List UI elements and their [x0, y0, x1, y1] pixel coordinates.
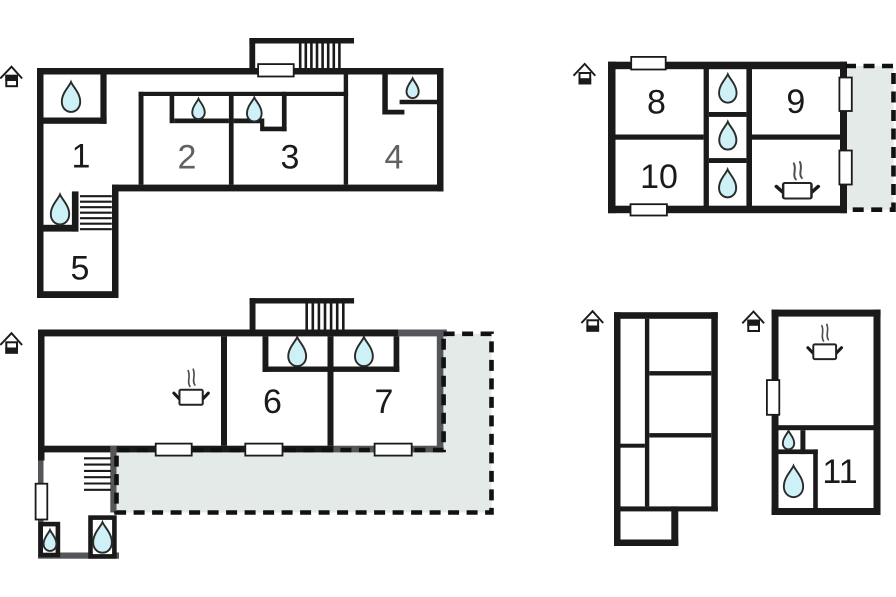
svg-text:2: 2	[178, 139, 197, 177]
svg-text:6: 6	[263, 383, 282, 421]
svg-text:4: 4	[385, 139, 404, 177]
svg-text:7: 7	[375, 383, 394, 421]
svg-text:9: 9	[786, 83, 805, 121]
svg-text:3: 3	[281, 139, 300, 177]
svg-text:8: 8	[647, 83, 666, 121]
svg-text:10: 10	[640, 158, 678, 196]
svg-text:5: 5	[71, 250, 90, 288]
svg-text:1: 1	[72, 138, 91, 176]
svg-text:11: 11	[822, 453, 857, 491]
